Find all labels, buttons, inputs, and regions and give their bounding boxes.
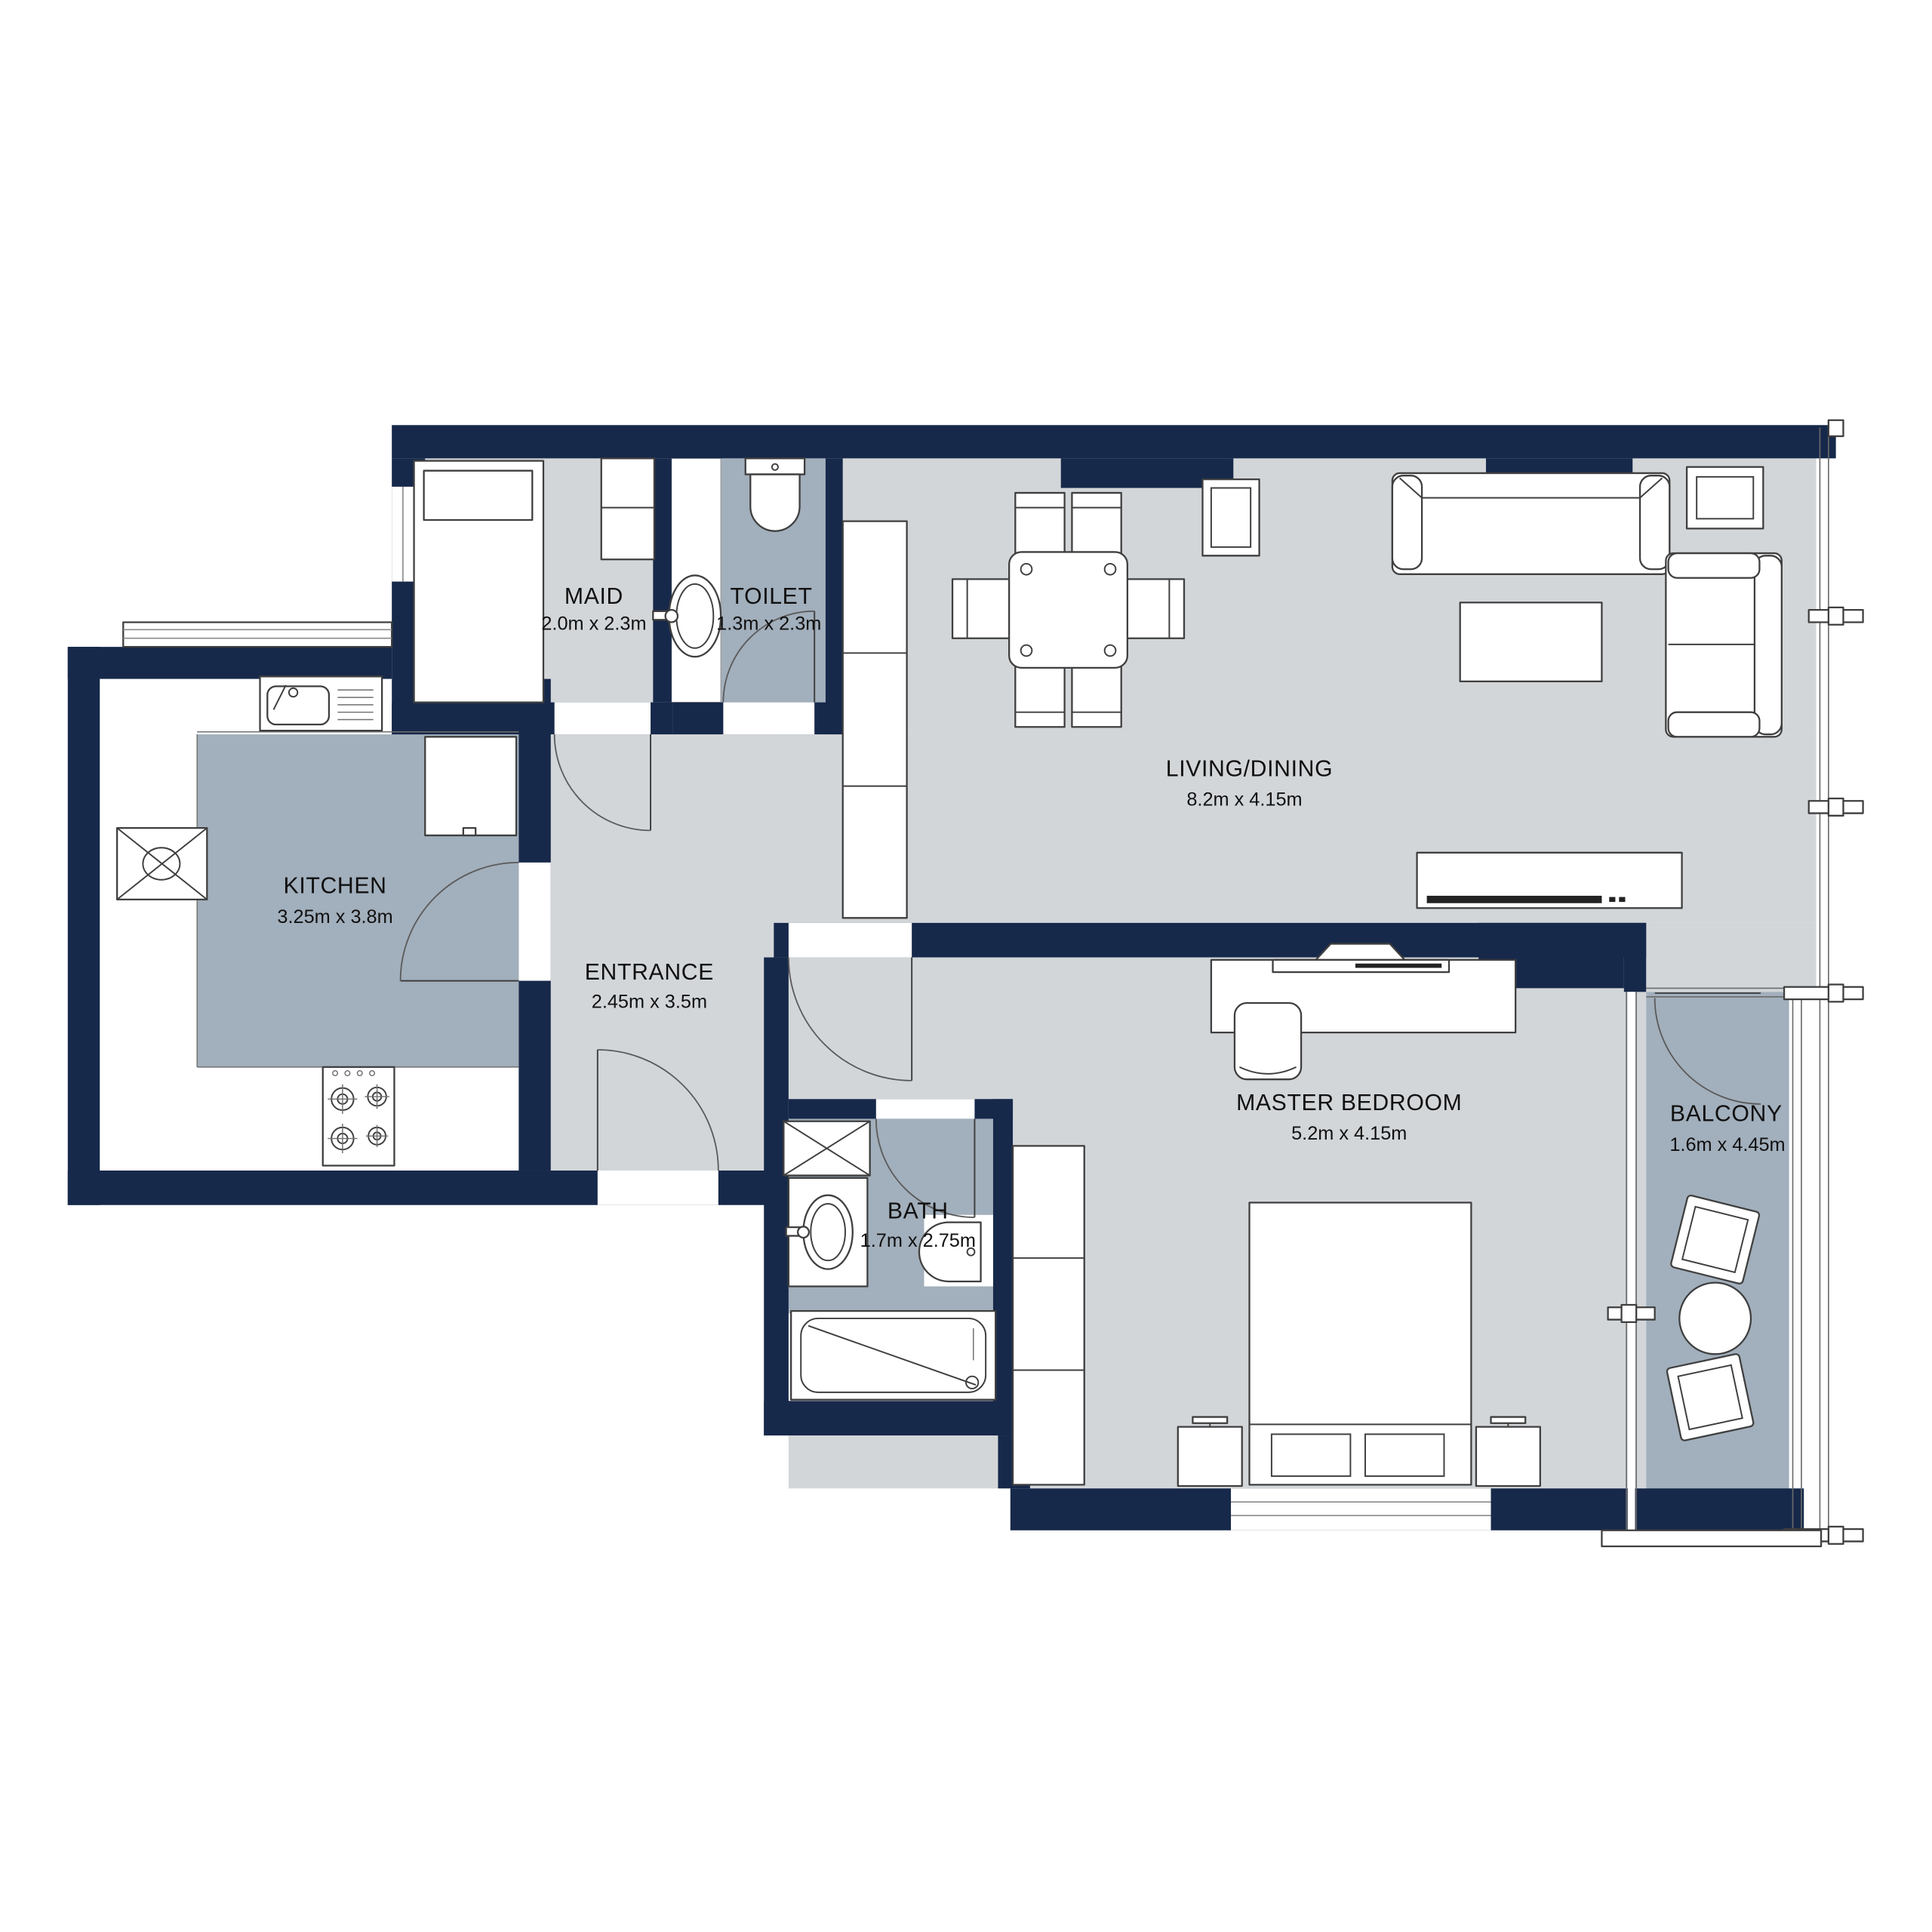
bath-door-opening [876, 1099, 975, 1118]
bedroom-door-opening [789, 923, 912, 958]
tv-stand [1316, 944, 1405, 960]
tall-cabinet-icon [843, 521, 907, 918]
toilet-dims: 1.3m x 2.3m [716, 613, 821, 634]
kitchen-label: KITCHEN [284, 874, 387, 899]
tv-console-icon [1417, 853, 1682, 908]
pillow-icon [424, 471, 533, 520]
glass-connector [1784, 984, 1863, 1001]
balcony-round-table-icon [1679, 1283, 1751, 1355]
living-dims: 8.2m x 4.15m [1186, 789, 1302, 811]
entrance-dims: 2.45m x 3.5m [592, 992, 707, 1013]
refrigerator-icon [425, 737, 516, 835]
wc-toilet-icon [750, 475, 799, 531]
wall-top [392, 425, 1835, 458]
maid-dims: 2.0m x 2.3m [541, 613, 646, 634]
bath-dims: 1.7m x 2.75m [860, 1230, 976, 1251]
sofa-armrest [1640, 475, 1669, 569]
nightstand-icon [1178, 1417, 1242, 1486]
living-balcony-strip [1646, 923, 1816, 992]
bedroom-dims: 5.2m x 4.15m [1291, 1123, 1407, 1144]
sofa-armrest [1669, 712, 1760, 737]
kitchen-window-band [123, 622, 392, 647]
two-seat-armchair-icon [1666, 553, 1781, 737]
toilet-door-opening [723, 703, 814, 734]
side-table-icon [1202, 479, 1259, 555]
wardrobe-icon [1013, 1146, 1084, 1484]
balcony-chair-icon [1666, 1353, 1754, 1441]
sofa-armrest [1392, 475, 1422, 569]
maid-door-opening [555, 703, 651, 734]
sofa-armrest [1669, 553, 1760, 578]
balcony-dims: 1.6m x 4.45m [1669, 1134, 1785, 1155]
glass-connector [1608, 1305, 1655, 1322]
bathtub-icon [791, 1311, 995, 1400]
floor-plan: MAID 2.0m x 2.3m TOILET 1.3m x 2.3m KITC… [0, 0, 1932, 1932]
wall-bath-left [764, 958, 789, 1435]
entrance-label: ENTRANCE [585, 960, 714, 985]
double-bed-icon [1250, 1202, 1472, 1484]
closet-icon [601, 458, 654, 559]
lamp-icon [1491, 1417, 1526, 1423]
balcony-label: BALCONY [1670, 1102, 1783, 1127]
side-table-icon [1687, 467, 1763, 529]
bedroom-label: MASTER BEDROOM [1236, 1091, 1462, 1115]
desk-chair-icon [1235, 1003, 1301, 1079]
kitchen-dims: 3.25m x 3.8m [277, 906, 392, 928]
bath-vanity-icon [786, 1178, 868, 1287]
wall-maid-toilet [653, 458, 671, 702]
dining-chair-icon [1128, 579, 1184, 638]
dining-chair-icon [1072, 493, 1121, 555]
service-shaft-icon [783, 1121, 869, 1176]
wall-bath-bottom [764, 1401, 1013, 1435]
three-seat-sofa-icon [1392, 473, 1669, 574]
wall-toilet-living [826, 458, 843, 734]
wall-kitchen-left [68, 647, 100, 1205]
glass-connector [1809, 798, 1863, 816]
kitchen-door-opening [518, 863, 550, 981]
entry-door-opening [598, 1171, 718, 1205]
wall-kitchen-top [68, 647, 392, 678]
soundbar-icon [1427, 896, 1602, 903]
wc-tank-icon [746, 458, 804, 474]
dining-chair-icon [1015, 666, 1064, 728]
lamp-icon [1192, 1417, 1227, 1423]
sofa-back [1755, 555, 1782, 734]
dining-chair-icon [1015, 493, 1064, 555]
gas-stove-icon [323, 1067, 395, 1166]
coffee-table-icon [1460, 602, 1602, 681]
maid-label: MAID [565, 584, 623, 609]
glass-connector [1809, 608, 1863, 625]
living-label: LIVING/DINING [1166, 757, 1334, 782]
glass-connector [1829, 420, 1844, 436]
dining-chair-icon [1072, 666, 1121, 728]
nightstand-icon [1476, 1417, 1540, 1486]
balcony-fixtures [1666, 1195, 1760, 1441]
room-entrance-floor [551, 734, 774, 1171]
service-shaft-icon [117, 828, 207, 900]
bedroom-window [1231, 1488, 1491, 1531]
bath-label: BATH [888, 1199, 949, 1224]
balcony-sill [1601, 1531, 1821, 1546]
toilet-label: TOILET [731, 584, 813, 609]
dining-chair-icon [952, 579, 1009, 638]
dining-table-top [1009, 552, 1128, 667]
wall-partition-column [1624, 923, 1646, 992]
